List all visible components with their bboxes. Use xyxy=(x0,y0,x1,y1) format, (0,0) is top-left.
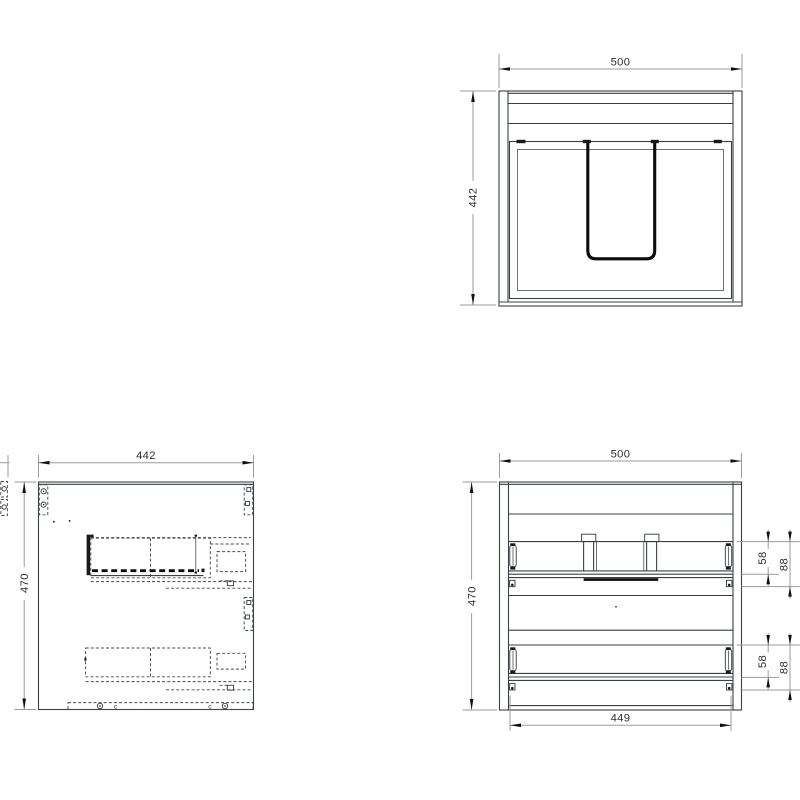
front-view-height-dimension: 470 xyxy=(463,482,497,710)
dim-label-front-height: 470 xyxy=(467,586,479,606)
side-view: c c 442 470 xyxy=(0,450,254,711)
dim-label-top-width: 500 xyxy=(611,57,631,69)
wall-bracket-right-top xyxy=(244,485,253,515)
dim-label-top-drawer-88: 88 xyxy=(778,558,790,571)
top-view-drawer-box xyxy=(510,142,732,299)
marker-c-right: c xyxy=(208,703,212,710)
top-view: 500 442 xyxy=(460,54,742,306)
front-view-bottom-drawer xyxy=(509,645,734,690)
wall-bracket-left xyxy=(39,485,48,515)
dim-label-front-width: 500 xyxy=(611,449,631,461)
front-view-cabinet-outline xyxy=(500,482,742,710)
top-view-width-dimension: 500 xyxy=(499,54,742,88)
top-drawer-height-dimensions: 58 88 xyxy=(737,530,800,599)
dim-label-bottom-drawer-88: 88 xyxy=(778,661,790,674)
side-view-bottom-drawer-slide xyxy=(84,648,252,690)
wall-bracket-right-mid xyxy=(244,598,253,631)
dim-label-side-depth: 442 xyxy=(136,450,156,462)
top-view-depth-dimension: 442 xyxy=(460,91,496,305)
dim-label-top-depth: 442 xyxy=(468,188,480,208)
technical-drawing-canvas: 500 442 xyxy=(0,0,800,800)
side-view-height-dimension: 470 xyxy=(15,482,37,710)
side-view-depth-dimension: 442 xyxy=(0,450,254,478)
front-view-top-drawer xyxy=(509,534,734,587)
side-view-cabinet-outline xyxy=(39,482,254,710)
siphon-cutout xyxy=(588,142,655,259)
dim-label-bottom-drawer-58: 58 xyxy=(757,655,769,668)
bottom-drawer-height-dimensions: 58 88 xyxy=(737,633,800,702)
wall-hook-symbols xyxy=(1,482,71,523)
front-view-width-dimension: 500 xyxy=(500,449,742,479)
marker-c-left: c xyxy=(114,703,118,710)
front-view-inner-width-dimension: 449 xyxy=(510,696,731,731)
side-view-top-drawer-slide xyxy=(87,535,253,589)
front-view: 500 470 449 58 xyxy=(463,449,800,732)
siphon-notch-front xyxy=(582,534,659,579)
dim-label-top-drawer-58: 58 xyxy=(757,551,769,564)
dim-label-side-height: 470 xyxy=(19,573,31,593)
dim-label-inner-width: 449 xyxy=(611,713,631,725)
top-view-cabinet-outline xyxy=(499,91,742,306)
vanity-cabinet-drawing: 500 442 xyxy=(0,0,800,800)
